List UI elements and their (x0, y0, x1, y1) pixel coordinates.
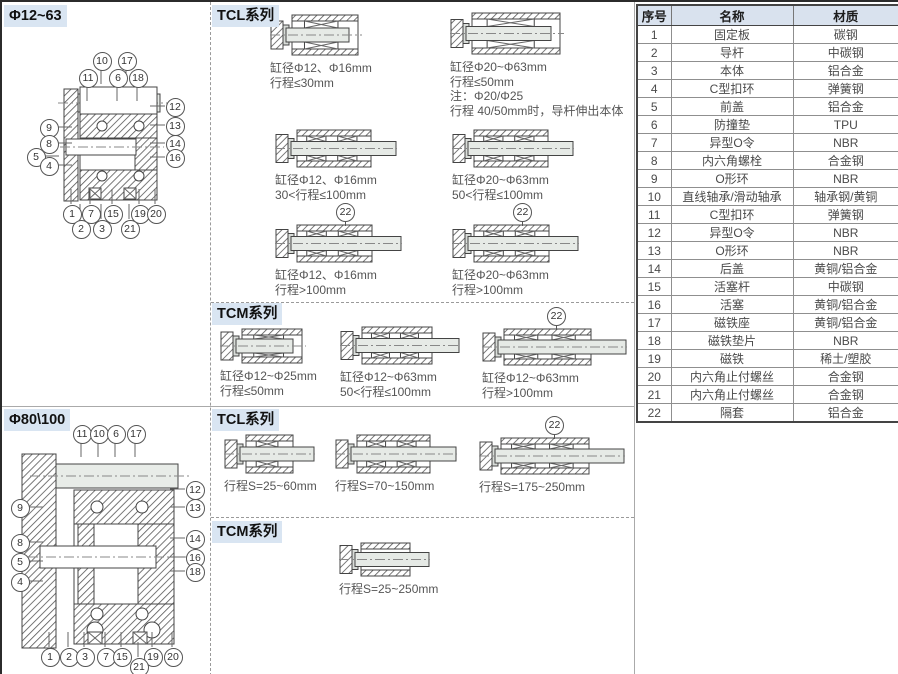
part-callout-16: 16 (166, 149, 185, 168)
table-cell: 1 (637, 26, 671, 44)
table-cell: 4 (637, 80, 671, 98)
part-callout-1: 1 (41, 648, 60, 667)
table-cell: 中碳钢 (793, 44, 898, 62)
section-title: Φ80\100 (4, 409, 70, 431)
part-callout-21: 21 (130, 658, 149, 674)
tcm-series-title-bottom: TCM系列 (212, 521, 282, 543)
table-row: 14后盖黄铜/铝合金 (637, 260, 898, 278)
vertical-solid-divider (634, 2, 635, 674)
figure-caption-line: 缸径Φ20~Φ63mm (452, 268, 592, 283)
col-header-material: 材质 (793, 5, 898, 26)
figure-caption-line: 行程 40/50mm时，导杆伸出本体 (450, 104, 634, 119)
table-cell: NBR (793, 224, 898, 242)
figure-caption-line: 注：Φ20/Φ25 (450, 89, 634, 104)
table-cell: 内六角螺栓 (671, 152, 793, 170)
cylinder-figure: 行程S=25~60mm (224, 432, 334, 494)
part-callout-22: 22 (513, 203, 532, 222)
table-row: 9O形环NBR (637, 170, 898, 188)
figure-caption: 缸径Φ20~Φ63mm行程≤50mm注：Φ20/Φ25行程 40/50mm时，导… (450, 60, 634, 118)
cylinder-drawing (335, 432, 457, 476)
table-cell: NBR (793, 170, 898, 188)
table-cell: 活塞杆 (671, 278, 793, 296)
part-callout-18: 18 (186, 563, 205, 582)
figure-caption: 缸径Φ12、Φ16mm行程≤30mm (270, 61, 400, 90)
figure-caption-line: 缸径Φ12~Φ63mm (482, 371, 630, 386)
cylinder-figure: 行程S=70~150mm (335, 432, 465, 494)
figure-caption-line: 行程≤30mm (270, 76, 400, 91)
table-row: 22隔套铝合金 (637, 404, 898, 423)
col-header-index: 序号 (637, 5, 671, 26)
part-callout-18: 18 (129, 69, 148, 88)
col-header-name: 名称 (671, 5, 793, 26)
table-cell: 黄铜/铝合金 (793, 296, 898, 314)
table-row: 2导杆中碳钢 (637, 44, 898, 62)
part-callout-6: 6 (109, 69, 128, 88)
cylinder-drawing (275, 127, 397, 170)
table-cell: 21 (637, 386, 671, 404)
table-cell: 合金钢 (793, 368, 898, 386)
part-callout-12: 12 (166, 98, 185, 117)
cylinder-drawing (275, 222, 402, 265)
part-callout-21: 21 (121, 220, 140, 239)
figure-caption-line: 缸径Φ12、Φ16mm (275, 268, 415, 283)
part-callout-11: 11 (79, 69, 98, 88)
cylinder-figure: 缸径Φ20~Φ63mm50<行程≤100mm (452, 127, 592, 202)
table-row: 18磁铁垫片NBR (637, 332, 898, 350)
table-cell: 弹簧钢 (793, 206, 898, 224)
figure-caption: 缸径Φ12、Φ16mm30<行程≤100mm (275, 173, 415, 202)
table-row: 6防撞垫TPU (637, 116, 898, 134)
figure-caption-line: 行程≤50mm (220, 384, 338, 399)
table-cell: 铝合金 (793, 404, 898, 423)
table-cell: 14 (637, 260, 671, 278)
figure-caption-line: 行程≤50mm (450, 75, 634, 90)
part-callout-10: 10 (93, 52, 112, 71)
parts-table: 序号 名称 材质 1固定板碳钢2导杆中碳钢3本体铝合金4C型扣环弹簧钢5前盖铝合… (636, 4, 898, 423)
figure-caption-line: 30<行程≤100mm (275, 188, 415, 203)
table-row: 10直线轴承/滑动轴承轴承钢/黄铜 (637, 188, 898, 206)
table-cell: O形环 (671, 170, 793, 188)
table-row: 5前盖铝合金 (637, 98, 898, 116)
table-row: 20内六角止付螺丝合金钢 (637, 368, 898, 386)
cylinder-figure: 22行程S=175~250mm (479, 435, 629, 495)
figure-caption: 行程S=70~150mm (335, 479, 465, 494)
table-row: 8内六角螺栓合金钢 (637, 152, 898, 170)
figure-caption: 缸径Φ20~Φ63mm行程>100mm (452, 268, 592, 297)
part-callout-15: 15 (113, 648, 132, 667)
part-callout-20: 20 (147, 205, 166, 224)
part-callout-12: 12 (186, 481, 205, 500)
part-callout-14: 14 (186, 530, 205, 549)
part-callout-3: 3 (93, 220, 112, 239)
figure-caption-line: 行程>100mm (452, 283, 592, 298)
part-callout-5: 5 (11, 553, 30, 572)
cylinder-drawing (339, 540, 430, 579)
tcl-series-title-bottom: TCL系列 (212, 409, 279, 431)
figure-caption-line: 行程S=70~150mm (335, 479, 465, 494)
cylinder-drawing (452, 127, 574, 170)
table-cell: TPU (793, 116, 898, 134)
table-cell: 合金钢 (793, 386, 898, 404)
cylinder-figure: 22缸径Φ12~Φ63mm行程>100mm (482, 326, 630, 400)
table-cell: 19 (637, 350, 671, 368)
cylinder-figure: 缸径Φ12~Φ63mm50<行程≤100mm (340, 324, 475, 399)
table-cell: 铝合金 (793, 98, 898, 116)
section-title: Φ12~63 (4, 5, 67, 27)
part-callout-22: 22 (545, 416, 564, 435)
part-callout-6: 6 (107, 425, 126, 444)
table-cell: 固定板 (671, 26, 793, 44)
figure-caption: 行程S=25~60mm (224, 479, 334, 494)
table-cell: 9 (637, 170, 671, 188)
cylinder-drawing (479, 435, 625, 477)
table-cell: 磁铁垫片 (671, 332, 793, 350)
table-cell: O形环 (671, 242, 793, 260)
part-callout-13: 13 (186, 499, 205, 518)
table-header-row: 序号 名称 材质 (637, 5, 898, 26)
table-cell: 后盖 (671, 260, 793, 278)
tcl-tcm-divider-bottom (211, 517, 634, 518)
table-cell: 3 (637, 62, 671, 80)
table-row: 16活塞黄铜/铝合金 (637, 296, 898, 314)
table-cell: 弹簧钢 (793, 80, 898, 98)
cylinder-drawing (270, 12, 362, 58)
table-row: 17磁铁座黄铜/铝合金 (637, 314, 898, 332)
section-phi80-100: Φ80\100 11106171213141618985412371519202… (2, 406, 210, 674)
table-cell: NBR (793, 134, 898, 152)
cylinder-figure: 缸径Φ20~Φ63mm行程≤50mm注：Φ20/Φ25行程 40/50mm时，导… (450, 10, 634, 118)
table-row: 15活塞杆中碳钢 (637, 278, 898, 296)
figure-caption: 缸径Φ12、Φ16mm行程>100mm (275, 268, 415, 297)
figure-caption-line: 50<行程≤100mm (452, 188, 592, 203)
table-cell: 22 (637, 404, 671, 423)
cylinder-drawing (452, 222, 579, 265)
table-cell: 直线轴承/滑动轴承 (671, 188, 793, 206)
figure-caption-line: 50<行程≤100mm (340, 385, 475, 400)
figure-caption-line: 行程S=25~250mm (339, 582, 449, 597)
figure-caption: 行程S=25~250mm (339, 582, 449, 597)
table-cell: 碳钢 (793, 26, 898, 44)
figure-caption: 缸径Φ12~Φ63mm50<行程≤100mm (340, 370, 475, 399)
cylinder-figure: 22缸径Φ12、Φ16mm行程>100mm (275, 222, 415, 297)
figure-caption: 缸径Φ12~Φ25mm行程≤50mm (220, 369, 338, 398)
table-cell: 20 (637, 368, 671, 386)
part-callout-4: 4 (11, 573, 30, 592)
table-cell: NBR (793, 242, 898, 260)
table-cell: 稀土/塑胶 (793, 350, 898, 368)
table-cell: 17 (637, 314, 671, 332)
cylinder-drawing (340, 324, 460, 367)
cylinder-figure: 缸径Φ12、Φ16mm行程≤30mm (270, 12, 400, 90)
part-callout-3: 3 (76, 648, 95, 667)
cylinder-drawing (220, 326, 306, 366)
figure-caption: 行程S=175~250mm (479, 480, 629, 495)
table-cell: 7 (637, 134, 671, 152)
part-callout-22: 22 (547, 307, 566, 326)
table-row: 3本体铝合金 (637, 62, 898, 80)
part-callout-2: 2 (72, 220, 91, 239)
cylinder-figure: 缸径Φ12~Φ25mm行程≤50mm (220, 326, 338, 398)
figure-caption-line: 行程S=175~250mm (479, 480, 629, 495)
table-cell: 内六角止付螺丝 (671, 386, 793, 404)
tcm-series-title-top: TCM系列 (212, 303, 282, 325)
part-callout-10: 10 (90, 425, 109, 444)
table-cell: 11 (637, 206, 671, 224)
table-cell: 合金钢 (793, 152, 898, 170)
table-row: 12异型O令NBR (637, 224, 898, 242)
part-callout-4: 4 (40, 157, 59, 176)
cylinder-figure: 22缸径Φ20~Φ63mm行程>100mm (452, 222, 592, 297)
part-callout-17: 17 (127, 425, 146, 444)
table-cell: 12 (637, 224, 671, 242)
table-cell: C型扣环 (671, 206, 793, 224)
table-cell: 磁铁 (671, 350, 793, 368)
table-cell: 异型O令 (671, 224, 793, 242)
table-cell: 铝合金 (793, 62, 898, 80)
table-row: 19磁铁稀土/塑胶 (637, 350, 898, 368)
table-row: 21内六角止付螺丝合金钢 (637, 386, 898, 404)
table-cell: 黄铜/铝合金 (793, 260, 898, 278)
table-cell: C型扣环 (671, 80, 793, 98)
vertical-dashed-divider (210, 2, 211, 674)
table-cell: 5 (637, 98, 671, 116)
table-cell: 18 (637, 332, 671, 350)
table-cell: 导杆 (671, 44, 793, 62)
figure-caption-line: 行程>100mm (275, 283, 415, 298)
cylinder-figure: 缸径Φ12、Φ16mm30<行程≤100mm (275, 127, 415, 202)
figure-caption-line: 行程S=25~60mm (224, 479, 334, 494)
cylinder-drawing (224, 432, 315, 476)
table-cell: 15 (637, 278, 671, 296)
table-cell: 10 (637, 188, 671, 206)
cylinder-drawing (450, 10, 564, 57)
figure-caption-line: 缸径Φ12、Φ16mm (270, 61, 400, 76)
table-cell: 前盖 (671, 98, 793, 116)
cylinder-drawing (482, 326, 627, 368)
table-cell: 中碳钢 (793, 278, 898, 296)
table-cell: 隔套 (671, 404, 793, 423)
table-row: 7异型O令NBR (637, 134, 898, 152)
figure-caption-line: 缸径Φ12~Φ63mm (340, 370, 475, 385)
table-cell: 黄铜/铝合金 (793, 314, 898, 332)
figure-caption-line: 缸径Φ12、Φ16mm (275, 173, 415, 188)
table-cell: 活塞 (671, 296, 793, 314)
part-callout-9: 9 (11, 499, 30, 518)
figure-caption-line: 缸径Φ20~Φ63mm (452, 173, 592, 188)
cross-section-diagram-large (2, 406, 210, 674)
table-row: 4C型扣环弹簧钢 (637, 80, 898, 98)
part-callout-13: 13 (166, 117, 185, 136)
part-callout-17: 17 (118, 52, 137, 71)
table-cell: 磁铁座 (671, 314, 793, 332)
table-cell: 16 (637, 296, 671, 314)
table-cell: 2 (637, 44, 671, 62)
figure-caption: 缸径Φ12~Φ63mm行程>100mm (482, 371, 630, 400)
part-callout-22: 22 (336, 203, 355, 222)
part-callout-20: 20 (164, 648, 183, 667)
table-cell: 异型O令 (671, 134, 793, 152)
table-cell: 防撞垫 (671, 116, 793, 134)
tcl-series-title-top: TCL系列 (212, 5, 279, 27)
figure-caption-line: 行程>100mm (482, 386, 630, 401)
section-phi12-63: Φ12~63 101711618121314169854171519202321 (2, 2, 210, 406)
figure-caption-line: 缸径Φ12~Φ25mm (220, 369, 338, 384)
catalog-page: Φ12~63 101711618121314169854171519202321… (0, 0, 898, 674)
table-cell: 内六角止付螺丝 (671, 368, 793, 386)
table-row: 13O形环NBR (637, 242, 898, 260)
figure-caption: 缸径Φ20~Φ63mm50<行程≤100mm (452, 173, 592, 202)
table-row: 1固定板碳钢 (637, 26, 898, 44)
cylinder-figure: 行程S=25~250mm (339, 540, 449, 597)
parts-table-body: 1固定板碳钢2导杆中碳钢3本体铝合金4C型扣环弹簧钢5前盖铝合金6防撞垫TPU7… (637, 26, 898, 423)
part-callout-8: 8 (11, 534, 30, 553)
table-cell: 轴承钢/黄铜 (793, 188, 898, 206)
figure-caption-line: 缸径Φ20~Φ63mm (450, 60, 634, 75)
table-cell: 本体 (671, 62, 793, 80)
table-cell: NBR (793, 332, 898, 350)
table-cell: 13 (637, 242, 671, 260)
table-cell: 8 (637, 152, 671, 170)
part-callout-11: 11 (73, 425, 92, 444)
table-cell: 6 (637, 116, 671, 134)
table-row: 11C型扣环弹簧钢 (637, 206, 898, 224)
